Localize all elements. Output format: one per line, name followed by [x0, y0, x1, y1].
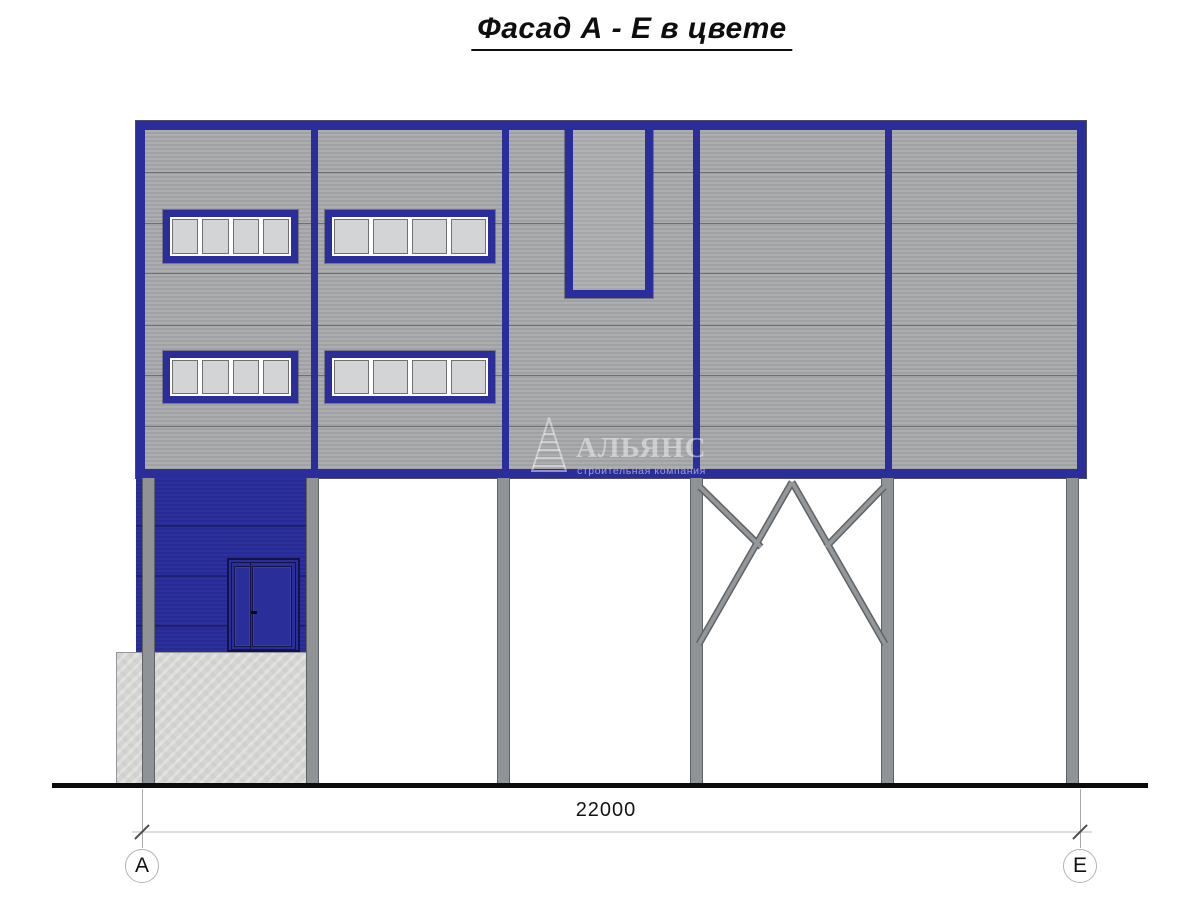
window-pane — [202, 360, 228, 394]
panel-joint-line — [145, 426, 1077, 427]
window-pane — [373, 219, 408, 254]
ground-line — [52, 783, 1148, 788]
window-pane — [373, 360, 408, 394]
window-pane — [451, 219, 486, 254]
window-pane — [263, 360, 289, 394]
panel-joint-line — [145, 325, 1077, 326]
window-pane — [412, 360, 447, 394]
facade-mullion — [693, 130, 700, 469]
window-pane — [172, 360, 198, 394]
axis-label: Е — [1073, 854, 1087, 878]
facade-mullion — [311, 130, 318, 469]
ribbon-window — [163, 351, 298, 403]
steel-column — [306, 478, 319, 786]
facade-mullion — [502, 130, 509, 469]
ribbon-window — [163, 210, 298, 263]
wall-panel-line — [136, 525, 310, 527]
facade-mullion — [885, 130, 892, 469]
extension-line — [142, 789, 143, 848]
door-leaf-left — [234, 566, 251, 647]
window-frame — [170, 358, 291, 396]
dimension-line — [132, 831, 1092, 833]
window-pane — [172, 219, 198, 254]
ribbon-window — [325, 210, 495, 263]
door-handle — [251, 611, 257, 614]
door-divider — [250, 562, 251, 650]
window-pane — [334, 219, 369, 254]
ribbon-window — [325, 351, 495, 403]
entrance-wall — [136, 478, 310, 652]
roof-notch — [565, 130, 653, 298]
window-pane — [263, 219, 289, 254]
building-facade — [136, 121, 1086, 478]
extension-line — [1080, 789, 1081, 848]
axis-label: А — [135, 854, 149, 878]
window-pane — [334, 360, 369, 394]
steel-column — [1066, 478, 1079, 786]
window-pane — [202, 219, 228, 254]
window-frame — [332, 217, 488, 256]
title-wrap: Фасад А - Е в цвете — [471, 12, 792, 51]
steel-column — [497, 478, 510, 786]
drawing-title: Фасад А - Е в цвете — [471, 12, 792, 51]
axis-marker-e: Е — [1063, 849, 1097, 883]
axis-marker-a: А — [125, 849, 159, 883]
entrance-door — [227, 558, 300, 652]
steel-column — [142, 478, 155, 786]
window-frame — [332, 358, 488, 396]
facade-drawing-canvas: Фасад А - Е в цвете — [0, 0, 1200, 900]
window-frame — [170, 217, 291, 256]
window-pane — [451, 360, 486, 394]
window-pane — [233, 360, 259, 394]
window-pane — [233, 219, 259, 254]
door-leaf-right — [252, 566, 292, 647]
window-pane — [412, 219, 447, 254]
dimension-value: 22000 — [536, 799, 676, 822]
cross-bracing — [690, 478, 900, 653]
